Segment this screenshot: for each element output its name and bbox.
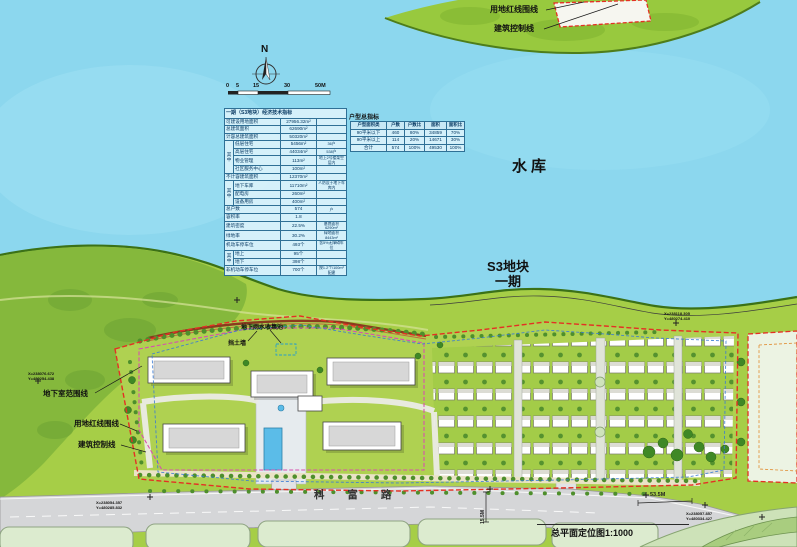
cell: 设备用房: [234, 198, 281, 206]
table-row: 社区服务中心100m²: [225, 166, 347, 174]
cell: 低层住宅: [234, 141, 281, 149]
cell: 总建筑面积: [225, 126, 281, 134]
table-row: 其中地上95个: [225, 251, 347, 259]
header-cell: 户型面积类: [351, 122, 387, 130]
cell: 398个: [281, 258, 317, 266]
cell: 62690m²: [281, 126, 317, 134]
table-row: 总建筑面积62690m²: [225, 126, 347, 134]
cell: 基底面积6290m²: [317, 221, 347, 231]
cell: [317, 166, 347, 174]
cell: 12370m²: [281, 173, 317, 181]
table-row: 不计容建筑面积12370m²: [225, 173, 347, 181]
top-control-line-label: 建筑控制线: [494, 23, 534, 34]
cell: 260m²: [281, 191, 317, 199]
cell: 其中: [225, 181, 234, 206]
basement-line-label: 地下室范围线: [43, 388, 88, 399]
cell: 90平米以上: [351, 137, 387, 145]
table-row: 建筑密度22.5%基底面积6290m²: [225, 221, 347, 231]
cell: 493个: [281, 241, 317, 251]
service-building: [298, 396, 322, 411]
cell: 人防设于地下车库内: [317, 181, 347, 191]
cell: 机动车停车位: [225, 241, 281, 251]
retaining-wall-label: 挡土墙: [228, 338, 246, 347]
cell: 1.8: [281, 214, 317, 222]
cell: 113m²: [281, 156, 317, 166]
cell: 11710m²: [281, 181, 317, 191]
water-highlight-2: [430, 50, 770, 170]
cell: 其中: [225, 251, 234, 266]
table-row: 90平米以上11420%1467130%: [351, 137, 465, 145]
phase-line1: S3地块: [479, 260, 537, 275]
cell: 配电房: [234, 191, 281, 199]
cell: 22.5%: [281, 221, 317, 231]
cell: 总户数: [225, 206, 281, 214]
map-graphics: [0, 0, 797, 547]
road-width-dimension: 53.5M: [650, 492, 665, 498]
pool: [264, 428, 282, 470]
scale-tick-5: 5: [236, 83, 239, 89]
cell: 20%: [405, 137, 425, 145]
coordinate-callout: X=238057.857 Y=480334.427: [686, 512, 712, 522]
table-row: 高层住宅44034m²538户: [225, 148, 347, 156]
east-parcel: [748, 331, 797, 483]
table-row: 一期（S3地块）经济技术指标: [225, 109, 347, 119]
cell: 绿地面积8443m²: [317, 231, 347, 241]
cell: 高层住宅: [234, 148, 281, 156]
cell: 30%: [447, 137, 465, 145]
table-row: 计容总建筑面积50320m²: [225, 133, 347, 141]
cell: 可建设用地面积: [225, 118, 281, 126]
cell: [317, 251, 347, 259]
coordinate-y: Y=480254.438: [28, 377, 54, 382]
cell: [317, 214, 347, 222]
cell: 物业管理: [234, 156, 281, 166]
table-row: 户型面积类 户数 户数比 面积 面积比: [351, 122, 465, 130]
cell: 其中: [225, 141, 234, 174]
phase-label: S3地块 一期: [479, 260, 537, 289]
cell: 100%: [447, 144, 465, 152]
header-cell: 面积: [425, 122, 447, 130]
table-row: 机动车停车位493个含5%无障碍车位: [225, 241, 347, 251]
cell: 户: [317, 206, 347, 214]
cell: 地下车库: [234, 181, 281, 191]
cell: [317, 191, 347, 199]
header-cell: 面积比: [447, 122, 465, 130]
cell: 400m²: [281, 198, 317, 206]
scale-tick-50: 50M: [315, 83, 326, 89]
unit-table-title: 户型总指标: [349, 112, 379, 121]
cell: 27956.32m²: [281, 118, 317, 126]
townhouse-area: [432, 336, 734, 481]
cell: 地上: [234, 251, 281, 259]
cell: 460: [387, 129, 405, 137]
coordinate-y: Y=480285.832: [96, 506, 122, 511]
scale-tick-0: 0: [226, 83, 229, 89]
cell: 非机动车停车位: [225, 266, 281, 276]
cell: 95个: [281, 251, 317, 259]
cell: 容积率: [225, 214, 281, 222]
cell: [317, 258, 347, 266]
left-control-line-label: 建筑控制线: [78, 439, 116, 450]
header-cell: 户数比: [405, 122, 425, 130]
table-row: 其中低层住宅5456m²36户: [225, 141, 347, 149]
table-row: 其中地下车库11710m²人防设于地下车库内: [225, 181, 347, 191]
coordinate-callout: X=238118.305 Y=480274.410: [664, 312, 690, 322]
table-row: 90平米以下46080%3485970%: [351, 129, 465, 137]
cell: 含5%无障碍车位: [317, 241, 347, 251]
cell: 574: [281, 206, 317, 214]
table-row: 容积率1.8: [225, 214, 347, 222]
table-row: 非机动车停车位700个按1.2个/100m²配建: [225, 266, 347, 276]
scale-tick-30: 30: [284, 83, 290, 89]
coordinate-y: Y=480334.427: [686, 517, 712, 522]
cell: 计容总建筑面积: [225, 133, 281, 141]
top-red-line-label: 用地红线围线: [490, 4, 538, 15]
cell: 90平米以下: [351, 129, 387, 137]
cell: [317, 126, 347, 134]
cell: 100%: [405, 144, 425, 152]
cell: 绿地率: [225, 231, 281, 241]
fountain: [278, 405, 284, 411]
cell: 80%: [405, 129, 425, 137]
coordinate-y: Y=480274.410: [664, 317, 690, 322]
rainwater-pool-label: 地下雨水收集池: [241, 322, 283, 331]
cell: 30.2%: [281, 231, 317, 241]
scale-bar: [228, 91, 330, 95]
cell: 34859: [425, 129, 447, 137]
econ-indicators-table: 一期（S3地块）经济技术指标 可建设用地面积27956.32m² 总建筑面积62…: [224, 108, 347, 276]
cell: 5456m²: [281, 141, 317, 149]
cell: 44034m²: [281, 148, 317, 156]
phase-line2: 一期: [479, 275, 537, 290]
table-row: 可建设用地面积27956.32m²: [225, 118, 347, 126]
cell: 538户: [317, 148, 347, 156]
cell: 574: [387, 144, 405, 152]
cell: 地上2号楼架空层内: [317, 156, 347, 166]
cell: 按1.2个/100m²配建: [317, 266, 347, 276]
north-label: N: [261, 44, 268, 55]
cell: 社区服务中心: [234, 166, 281, 174]
drawing-title: 总平面定位图1:1000: [537, 525, 689, 539]
table-row: 设备用房400m²: [225, 198, 347, 206]
cell: [317, 118, 347, 126]
cell: 50320m²: [281, 133, 317, 141]
cell: 114: [387, 137, 405, 145]
left-red-line-label: 用地红线围线: [74, 418, 119, 429]
cell: 14671: [425, 137, 447, 145]
road-name-label: 科 富 路: [314, 487, 401, 502]
table-row: 配电房260m²: [225, 191, 347, 199]
cell: 70%: [447, 129, 465, 137]
table-row: 物业管理113m²地上2号楼架空层内: [225, 156, 347, 166]
cell: 49530: [425, 144, 447, 152]
entry-width-dimension: 15.5M: [480, 510, 486, 524]
coordinate-callout: X=238076.672 Y=480254.438: [28, 372, 54, 382]
table-row: 合计574100%49530100%: [351, 144, 465, 152]
title-block: 总平面定位图1:1000: [537, 524, 689, 539]
reservoir-label: 水库: [512, 155, 550, 176]
cell: 地下: [234, 258, 281, 266]
cell: 700个: [281, 266, 317, 276]
header-cell: 户数: [387, 122, 405, 130]
cell: [317, 133, 347, 141]
cell: 建筑密度: [225, 221, 281, 231]
table-row: 绿地率30.2%绿地面积8443m²: [225, 231, 347, 241]
coordinate-callout: X=238054.357 Y=480285.832: [96, 501, 122, 511]
cell: [317, 173, 347, 181]
cell: 36户: [317, 141, 347, 149]
cell: 100m²: [281, 166, 317, 174]
scale-tick-15: 15: [253, 83, 259, 89]
cell: 不计容建筑面积: [225, 173, 281, 181]
cell: 合计: [351, 144, 387, 152]
econ-table-title: 一期（S3地块）经济技术指标: [225, 109, 347, 119]
table-row: 总户数574户: [225, 206, 347, 214]
unit-mix-table: 户型面积类 户数 户数比 面积 面积比 90平米以下46080%3485970%…: [350, 121, 465, 152]
table-row: 地下398个: [225, 258, 347, 266]
cell: [317, 198, 347, 206]
site-plan-drawing: N 0 5 15 30 50M 一期（S3地块）经济技术指标 可建设用地面积27…: [0, 0, 797, 547]
